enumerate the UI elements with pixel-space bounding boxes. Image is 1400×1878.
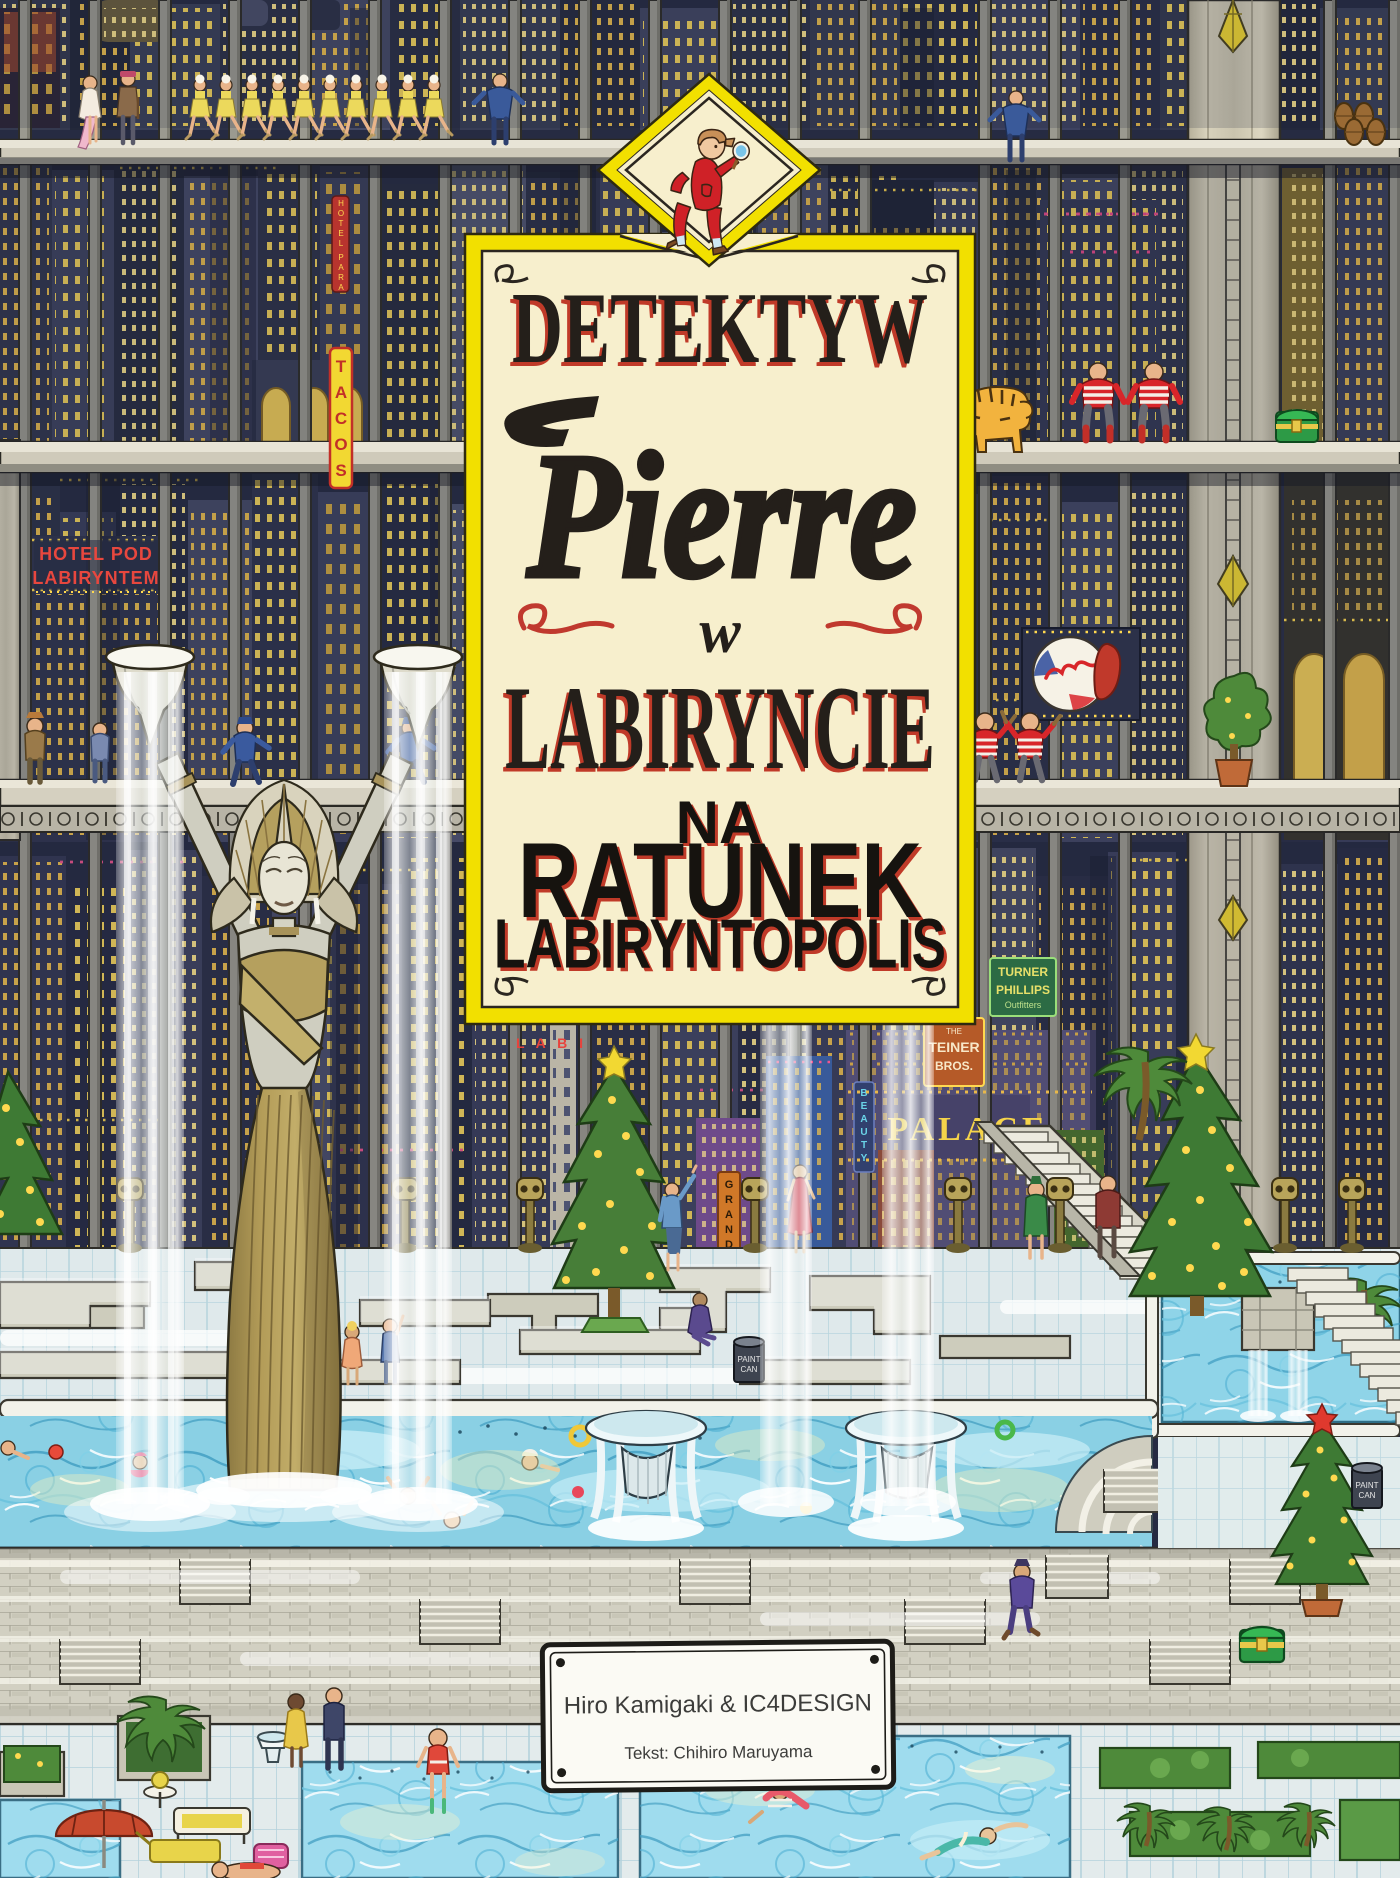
svg-text:E: E xyxy=(338,229,343,238)
svg-text:CAN: CAN xyxy=(741,1365,758,1374)
svg-text:A: A xyxy=(860,1114,867,1125)
svg-text:L: L xyxy=(339,239,344,248)
svg-text:R: R xyxy=(338,273,344,282)
svg-text:C: C xyxy=(335,409,347,428)
svg-text:HOTEL POD: HOTEL POD xyxy=(39,544,153,564)
svg-text:THE: THE xyxy=(946,1027,962,1036)
svg-text:LABIRYNTOPOLIS: LABIRYNTOPOLIS xyxy=(494,905,946,983)
svg-text:L A B I: L A B I xyxy=(516,1035,587,1051)
svg-text:A: A xyxy=(335,383,347,402)
svg-text:U: U xyxy=(860,1127,867,1138)
svg-text:T: T xyxy=(861,1140,867,1151)
svg-text:T: T xyxy=(336,357,347,376)
svg-text:G: G xyxy=(725,1179,734,1191)
svg-text:PAINT: PAINT xyxy=(738,1355,761,1364)
svg-text:R: R xyxy=(725,1194,733,1206)
svg-text:Outfitters: Outfitters xyxy=(1005,1000,1042,1010)
svg-text:PHILLIPS: PHILLIPS xyxy=(996,983,1050,997)
svg-text:S: S xyxy=(335,461,346,480)
svg-text:DETEKTYW: DETEKTYW xyxy=(512,272,928,385)
svg-text:A: A xyxy=(725,1209,733,1221)
svg-text:E: E xyxy=(861,1101,868,1112)
svg-text:PAINT: PAINT xyxy=(1356,1481,1379,1490)
svg-text:Pierre: Pierre xyxy=(526,416,917,615)
svg-text:BROS.: BROS. xyxy=(935,1059,973,1073)
svg-text:A: A xyxy=(338,283,344,292)
svg-text:TEINER: TEINER xyxy=(928,1039,979,1055)
svg-text:P: P xyxy=(338,253,343,262)
svg-text:T: T xyxy=(339,219,344,228)
svg-text:Tekst: Chihiro Maruyama: Tekst: Chihiro Maruyama xyxy=(624,1742,813,1763)
svg-text:CAN: CAN xyxy=(1359,1491,1376,1500)
svg-text:w: w xyxy=(699,598,741,666)
svg-text:LABIRYNTEM: LABIRYNTEM xyxy=(32,568,159,588)
svg-text:N: N xyxy=(725,1224,733,1236)
svg-text:TURNER: TURNER xyxy=(998,965,1048,979)
svg-text:Hiro Kamigaki & IC4DESIGN: Hiro Kamigaki & IC4DESIGN xyxy=(564,1689,872,1719)
svg-text:H: H xyxy=(338,199,344,208)
svg-text:LABIRYNCIE: LABIRYNCIE xyxy=(505,661,935,795)
svg-text:O: O xyxy=(334,435,347,454)
svg-text:O: O xyxy=(338,209,344,218)
svg-text:A: A xyxy=(338,263,344,272)
